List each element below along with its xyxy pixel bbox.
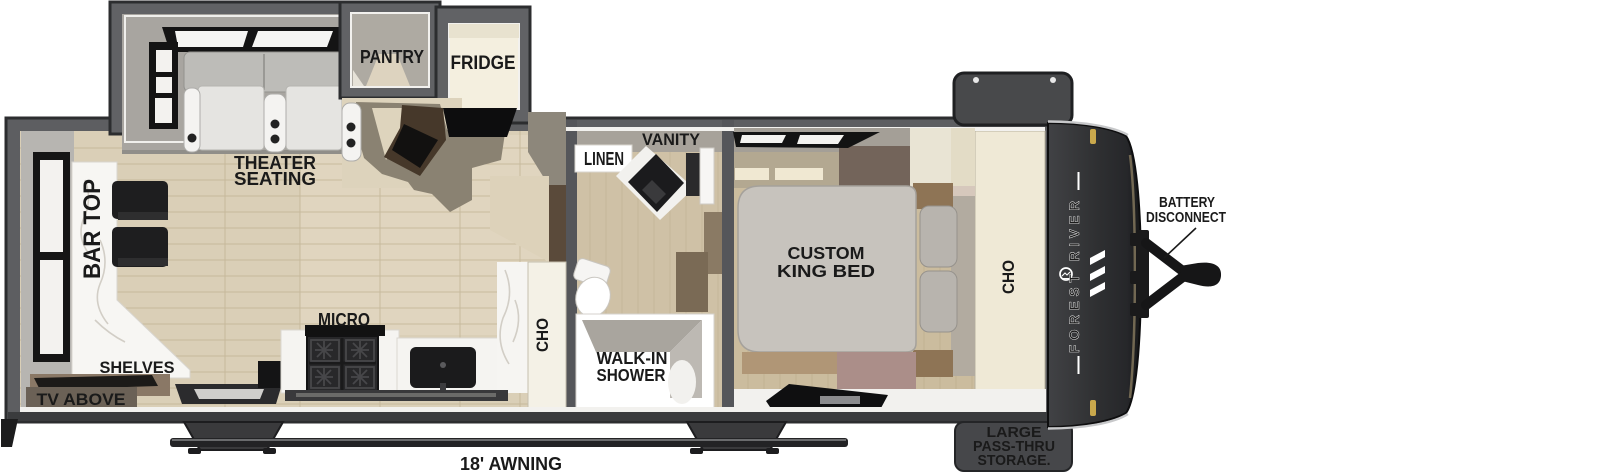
svg-text:CUSTOM: CUSTOM bbox=[788, 243, 865, 263]
svg-text:BAR TOP: BAR TOP bbox=[79, 179, 106, 279]
svg-text:FOREST RIVER: FOREST RIVER bbox=[1067, 201, 1082, 353]
svg-text:TV ABOVE: TV ABOVE bbox=[37, 391, 126, 409]
svg-text:FRIDGE: FRIDGE bbox=[451, 53, 516, 74]
svg-text:STORAGE.: STORAGE. bbox=[978, 452, 1051, 469]
svg-text:CHO: CHO bbox=[534, 318, 552, 352]
svg-text:18' AWNING: 18' AWNING bbox=[460, 454, 562, 472]
svg-text:SHOWER: SHOWER bbox=[597, 365, 666, 385]
svg-text:VANITY: VANITY bbox=[642, 130, 701, 149]
svg-text:LINEN: LINEN bbox=[584, 149, 624, 169]
svg-text:PANTRY: PANTRY bbox=[360, 46, 425, 67]
svg-text:BATTERY: BATTERY bbox=[1159, 195, 1215, 211]
svg-text:CHO: CHO bbox=[1000, 260, 1018, 294]
svg-text:KING BED: KING BED bbox=[777, 261, 875, 281]
svg-text:SEATING: SEATING bbox=[234, 169, 316, 189]
svg-text:DISCONNECT: DISCONNECT bbox=[1146, 210, 1226, 226]
svg-text:MICRO: MICRO bbox=[318, 309, 370, 330]
